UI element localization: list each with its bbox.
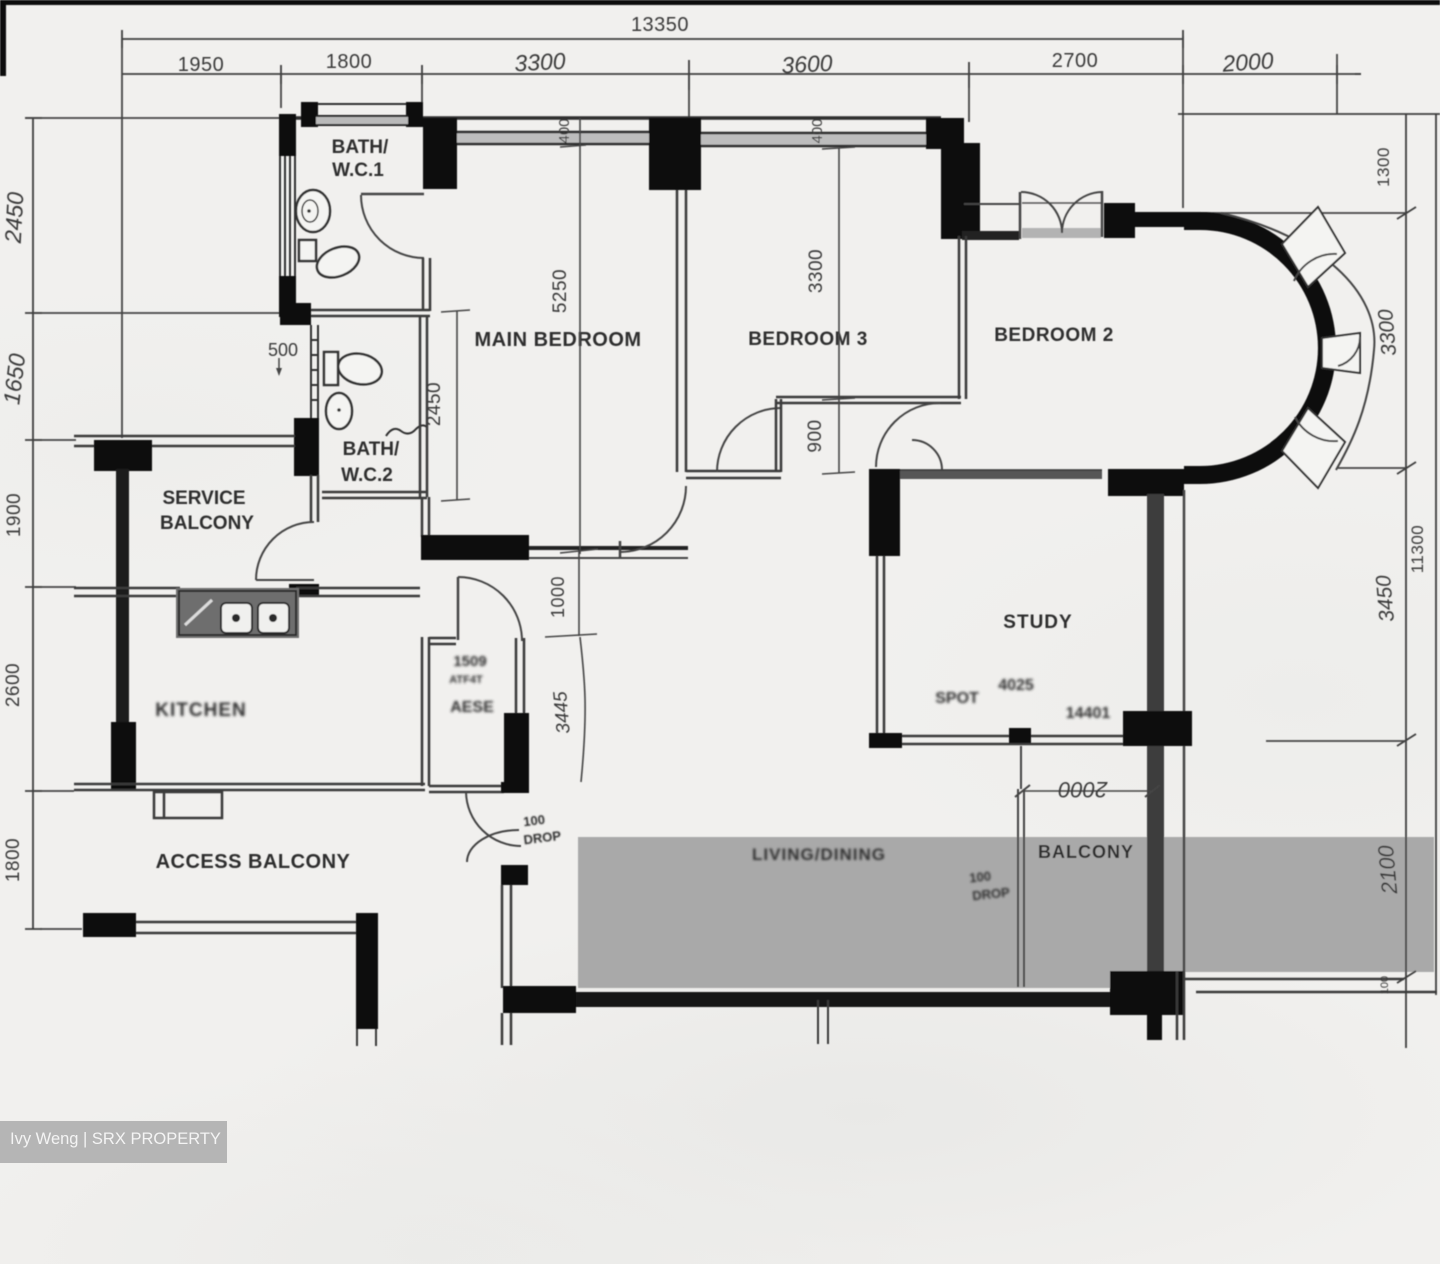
svg-text:14401: 14401 xyxy=(1066,705,1111,722)
svg-text:BALCONY: BALCONY xyxy=(1038,842,1134,862)
svg-text:2100: 2100 xyxy=(1373,843,1402,896)
svg-text:3300: 3300 xyxy=(806,249,827,293)
svg-text:3450: 3450 xyxy=(1372,574,1399,623)
svg-text:KITCHEN: KITCHEN xyxy=(155,700,246,721)
svg-text:DROP: DROP xyxy=(523,828,562,848)
svg-text:2700: 2700 xyxy=(1052,50,1099,72)
svg-text:BALCONY: BALCONY xyxy=(160,513,254,534)
svg-text:11300: 11300 xyxy=(1408,525,1427,574)
svg-text:5250: 5250 xyxy=(550,269,571,313)
svg-text:MAIN BEDROOM: MAIN BEDROOM xyxy=(474,329,641,351)
svg-text:1950: 1950 xyxy=(178,54,225,76)
svg-text:4025: 4025 xyxy=(998,677,1034,694)
svg-text:AESE: AESE xyxy=(450,699,494,716)
svg-text:3300: 3300 xyxy=(1374,308,1401,357)
svg-text:3300: 3300 xyxy=(514,48,567,77)
svg-text:900: 900 xyxy=(805,419,826,452)
svg-text:400: 400 xyxy=(809,118,826,143)
svg-text:400: 400 xyxy=(556,118,573,143)
svg-text:13350: 13350 xyxy=(631,14,689,36)
svg-text:LIVING/DINING: LIVING/DINING xyxy=(752,845,886,864)
svg-text:SPOT: SPOT xyxy=(935,690,979,707)
svg-text:2000: 2000 xyxy=(1221,47,1275,77)
svg-text:BATH/: BATH/ xyxy=(332,137,389,158)
svg-text:ACCESS BALCONY: ACCESS BALCONY xyxy=(156,851,351,873)
svg-text:W.C.1: W.C.1 xyxy=(332,160,384,181)
svg-text:BEDROOM 3: BEDROOM 3 xyxy=(748,329,868,350)
svg-text:2600: 2600 xyxy=(3,663,24,707)
svg-text:ATF4T: ATF4T xyxy=(449,674,483,686)
svg-text:1800: 1800 xyxy=(326,51,373,73)
svg-text:BATH/: BATH/ xyxy=(343,439,400,460)
svg-text:2000: 2000 xyxy=(1058,777,1109,802)
svg-text:1000: 1000 xyxy=(548,576,568,618)
svg-text:100: 100 xyxy=(969,868,992,885)
svg-text:500: 500 xyxy=(268,340,298,360)
svg-text:1300: 1300 xyxy=(1374,147,1393,187)
svg-text:1650: 1650 xyxy=(0,352,30,406)
svg-text:1509: 1509 xyxy=(453,653,486,670)
svg-text:STUDY: STUDY xyxy=(1003,612,1072,633)
svg-text:W.C.2: W.C.2 xyxy=(341,465,393,486)
svg-text:2450: 2450 xyxy=(0,191,28,245)
svg-text:SERVICE: SERVICE xyxy=(162,488,245,509)
svg-text:3445: 3445 xyxy=(550,690,575,734)
svg-text:BEDROOM 2: BEDROOM 2 xyxy=(994,325,1114,346)
svg-text:2450: 2450 xyxy=(424,382,445,426)
svg-text:1900: 1900 xyxy=(4,493,25,537)
svg-text:1800: 1800 xyxy=(3,838,24,882)
svg-text:100: 100 xyxy=(522,812,545,830)
svg-text:3600: 3600 xyxy=(781,50,834,79)
